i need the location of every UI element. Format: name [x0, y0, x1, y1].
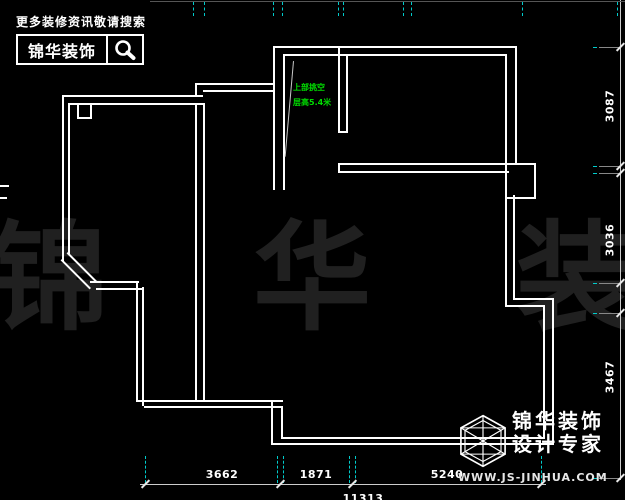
extension-line: [338, 2, 339, 16]
wall-segment: [505, 305, 545, 307]
wall-segment: [68, 103, 70, 254]
wall-segment: [62, 95, 64, 261]
wall-segment: [195, 103, 197, 402]
bottom-dimension-line: [140, 484, 546, 485]
wall-segment: [136, 400, 283, 402]
wall-segment: [90, 281, 139, 283]
wall-segment: [338, 131, 348, 133]
wall-segment: [513, 195, 515, 300]
wall-segment: [0, 185, 9, 187]
extension-line: [599, 283, 619, 284]
wall-segment: [203, 103, 205, 402]
dimension-label: 3087: [604, 90, 617, 123]
wall-segment: [515, 46, 517, 165]
extension-line: [204, 2, 205, 16]
wall-segment: [513, 298, 554, 300]
extension-line: [599, 173, 619, 174]
right-dimension-line: [620, 0, 621, 480]
column-box: [77, 103, 92, 119]
wall-segment: [0, 197, 7, 199]
wall-segment: [338, 46, 340, 133]
wall-segment: [505, 54, 507, 165]
void-annotation-line1: 上部挑空: [293, 80, 331, 95]
floor-plan-canvas: 锦 华 装 饰 上部挑空 层高5.4米 更多装修资讯敬请搜索 锦华装饰: [0, 0, 625, 500]
wall-segment: [338, 171, 509, 173]
magnifier-icon: [106, 36, 142, 63]
extension-line: [599, 313, 619, 314]
wall-segment: [283, 54, 507, 56]
wall-segment: [142, 287, 144, 406]
wall-segment: [283, 54, 285, 190]
dimension-label: 1871: [300, 468, 333, 481]
extension-line: [343, 2, 344, 16]
dimension-total-label: 11313: [343, 492, 384, 500]
extension-line: [599, 166, 619, 167]
wall-segment: [195, 83, 275, 85]
cube-logo-icon: [458, 414, 508, 468]
extension-line: [349, 456, 350, 483]
wall-segment: [505, 195, 507, 307]
dimension-label: 3662: [206, 468, 239, 481]
extension-line: [403, 2, 404, 16]
void-annotation-line2: 层高5.4米: [293, 95, 331, 110]
wall-segment: [136, 281, 138, 402]
wall-segment: [62, 95, 203, 97]
wall-segment: [346, 54, 348, 133]
extension-line: [193, 2, 194, 16]
wall-segment: [144, 406, 283, 408]
header-search-box: 锦华装饰: [16, 34, 144, 65]
extension-line: [411, 2, 412, 16]
footer-brand-line2: 设计专家: [512, 433, 604, 456]
extension-line: [522, 2, 523, 16]
dimension-label: 3036: [604, 224, 617, 257]
wall-segment: [96, 288, 144, 290]
top-dimension-line: [150, 1, 625, 2]
footer-brand-line1: 锦华装饰: [512, 410, 604, 433]
extension-line: [599, 47, 619, 48]
extension-line: [273, 2, 274, 16]
wall-segment: [281, 406, 283, 439]
extension-line: [282, 2, 283, 16]
dimension-tick: [616, 473, 625, 482]
wall-segment: [203, 90, 275, 92]
pier-box: [505, 163, 536, 199]
wall-segment: [338, 163, 509, 165]
header-brand-block: 更多装修资讯敬请搜索 锦华装饰: [16, 13, 146, 65]
wall-segment: [195, 83, 197, 97]
footer-brand-block: 锦华装饰 设计专家 WWW.JS-JINHUA.COM: [458, 410, 608, 484]
watermark-text: 锦 华 装 饰: [0, 182, 625, 353]
wall-segment: [273, 46, 517, 48]
header-brand-name: 锦华装饰: [18, 36, 106, 63]
void-annotation: 上部挑空 层高5.4米: [293, 80, 331, 110]
wall-segment: [273, 46, 275, 190]
extension-line: [145, 456, 146, 483]
footer-url: WWW.JS-JINHUA.COM: [458, 471, 608, 484]
extension-line: [617, 2, 618, 16]
wall-segment: [338, 163, 340, 173]
dimension-label: 3467: [604, 361, 617, 394]
extension-line: [277, 456, 278, 483]
header-tagline: 更多装修资讯敬请搜索: [16, 13, 146, 30]
